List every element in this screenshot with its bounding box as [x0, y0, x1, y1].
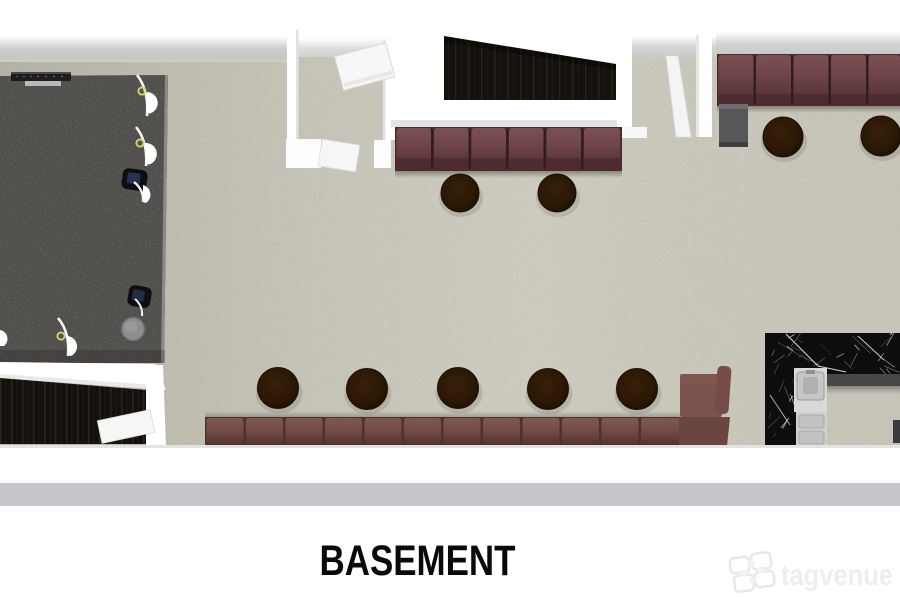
svg-text:tagvenue: tagvenue — [781, 559, 893, 592]
svg-text:BASEMENT: BASEMENT — [320, 537, 516, 585]
